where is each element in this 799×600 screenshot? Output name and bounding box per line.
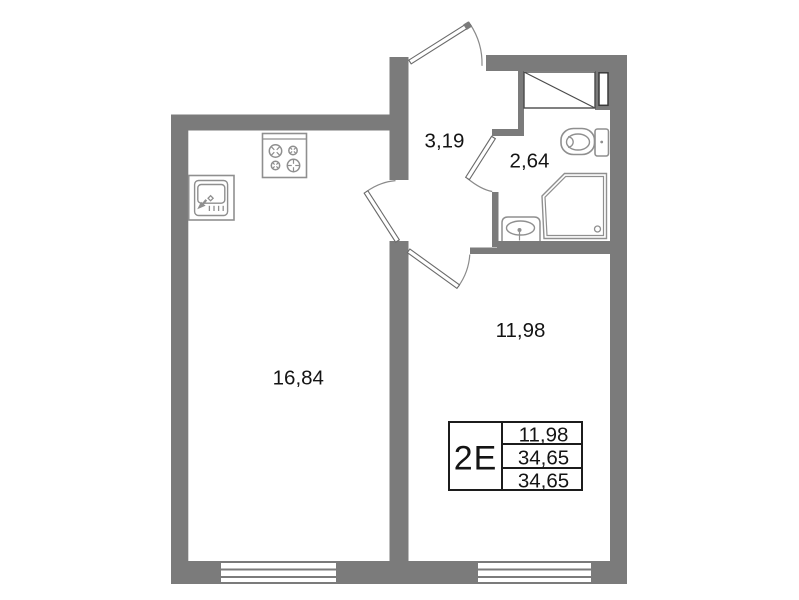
svg-text:11,98: 11,98 xyxy=(496,319,546,342)
svg-text:2Е: 2Е xyxy=(454,440,498,478)
svg-text:3,19: 3,19 xyxy=(425,129,465,152)
svg-text:2,64: 2,64 xyxy=(510,149,550,172)
svg-text:11,98: 11,98 xyxy=(519,424,569,447)
svg-text:16,84: 16,84 xyxy=(273,367,324,390)
svg-text:34,65: 34,65 xyxy=(518,470,569,493)
svg-text:34,65: 34,65 xyxy=(518,447,569,470)
